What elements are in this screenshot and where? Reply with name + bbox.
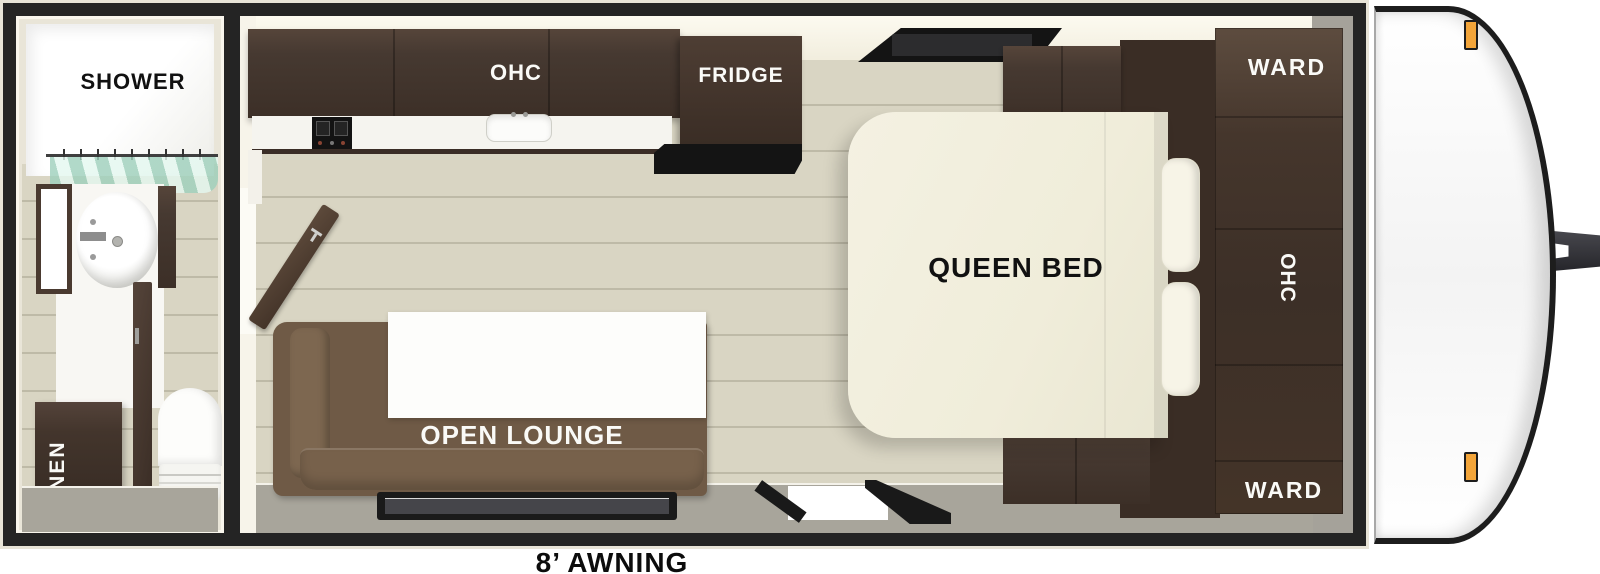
nightstand-bottom xyxy=(1003,434,1150,504)
sink-faucet-dot xyxy=(511,112,516,117)
shower-label: SHOWER xyxy=(71,69,195,95)
fridge-label: FRIDGE xyxy=(690,64,792,88)
window xyxy=(377,492,677,520)
lounge-table xyxy=(388,312,706,418)
marker-light-bottom xyxy=(1464,452,1478,482)
sink-drain xyxy=(112,236,123,247)
bathroom-area: SHOWER LINEN xyxy=(16,16,224,533)
kitchen-ohc-label: OHC xyxy=(466,60,566,86)
main-living-area: OHC FRIDGE xyxy=(240,16,1353,533)
window-glass xyxy=(385,498,669,514)
stove-knob xyxy=(318,141,322,145)
bed-ohc-label: OHC xyxy=(1276,248,1298,308)
stove-cooktop xyxy=(312,117,352,149)
faucet-knob xyxy=(90,254,96,260)
counter-end-panel xyxy=(248,150,262,204)
stove-knob xyxy=(330,141,334,145)
fridge-cabinet xyxy=(680,36,802,150)
sofa-seat-cushion xyxy=(300,448,704,490)
bathroom-door xyxy=(133,282,152,492)
bathroom-walkway xyxy=(22,486,218,532)
kitchen-overhead-cabinet xyxy=(248,29,680,118)
stove-burner xyxy=(334,121,348,136)
ward-top-label: WARD xyxy=(1239,54,1335,81)
kitchen-sink xyxy=(486,114,552,142)
bathroom-mirror xyxy=(36,184,72,294)
pillow xyxy=(1161,158,1200,272)
toilet-bowl xyxy=(158,388,222,466)
sink-faucet-dot xyxy=(523,112,528,117)
faucet-knob xyxy=(90,219,96,225)
queen-bed-label: QUEEN BED xyxy=(916,252,1116,284)
marker-light-top xyxy=(1464,20,1478,50)
open-lounge-label: OPEN LOUNGE xyxy=(397,420,647,451)
fridge-base xyxy=(654,144,802,174)
sink-faucet xyxy=(80,232,106,241)
vanity-side-cabinet xyxy=(158,186,176,288)
door-handle xyxy=(310,233,317,242)
rv-floorplan: SHOWER LINEN xyxy=(0,0,1600,574)
stove-burner xyxy=(316,121,330,136)
ward-bottom-label: WARD xyxy=(1236,477,1332,504)
stove-knob xyxy=(341,141,345,145)
door-handle xyxy=(135,328,139,344)
awning-label: 8’ AWNING xyxy=(512,547,712,574)
pillow xyxy=(1161,282,1200,396)
